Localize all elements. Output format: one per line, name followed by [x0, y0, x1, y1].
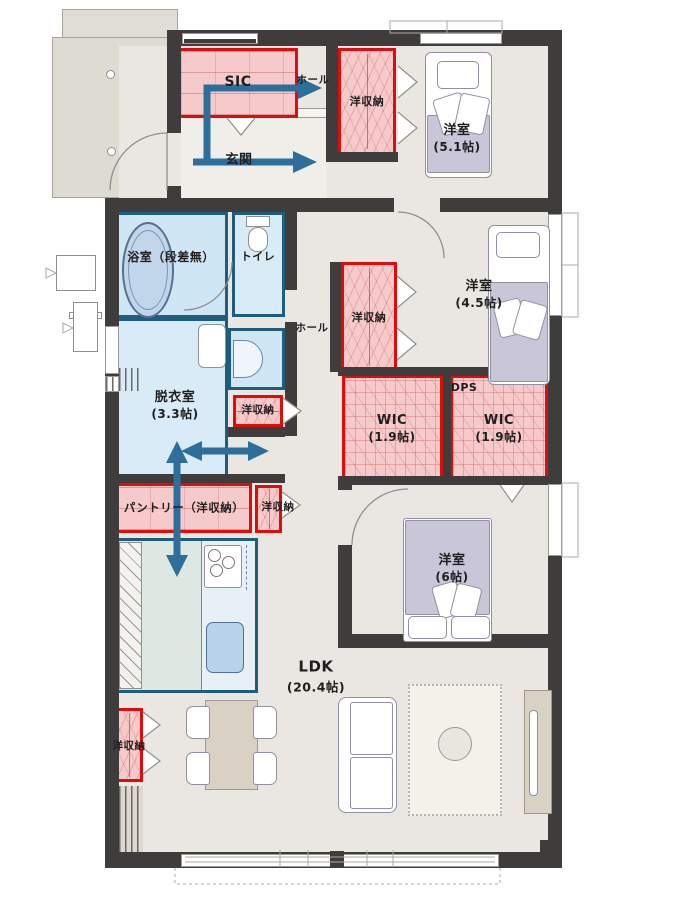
- label-hall-upper: ホール: [297, 74, 330, 88]
- label-genkan: 玄関: [225, 153, 252, 170]
- label-closet-ldk: 洋収納: [113, 740, 146, 754]
- genkan-floor: [181, 118, 327, 198]
- room-area: (20.4帖): [287, 679, 345, 694]
- wall-hall-east-b: [285, 322, 297, 436]
- label-dps: DPS: [451, 381, 478, 395]
- room-area: (5.1帖): [433, 140, 480, 154]
- tv-icon: [529, 710, 538, 796]
- wall-wic-bottom: [338, 476, 548, 485]
- outdoor-unit-icon: [56, 255, 96, 291]
- equipment-marker-icon: [46, 268, 56, 278]
- label-bath: 浴室（段差無）: [127, 250, 215, 266]
- round-table-icon: [438, 727, 472, 761]
- wall-room-split-b: [440, 198, 548, 212]
- label-sic: SIC: [224, 73, 251, 91]
- burner-icon: [208, 549, 221, 562]
- label-bed45: 洋室 (4.5帖): [455, 279, 502, 313]
- kitchen-cupboard: [119, 542, 142, 689]
- room-area: (4.5帖): [455, 296, 502, 310]
- label-wic-right: WIC (1.9帖): [475, 413, 522, 447]
- floor-plan: SIC ホール 玄関 洋収納 洋室 (5.1帖) 浴室（段差無） トイレ 洋収納…: [0, 0, 675, 900]
- porch-post-icon: [107, 147, 116, 156]
- chair-icon: [186, 752, 210, 785]
- wall-under-closet-top: [326, 152, 398, 162]
- wall-left: [105, 198, 119, 852]
- window-frame: [562, 483, 578, 557]
- label-toilet: トイレ: [241, 250, 276, 264]
- label-bed6: 洋室 (6帖): [435, 553, 468, 587]
- label-closet-top: 洋収納: [350, 95, 385, 109]
- pillow-icon: [408, 616, 447, 639]
- equipment-marker-icon: [63, 323, 73, 333]
- label-wic-left: WIC (1.9帖): [368, 413, 415, 447]
- window-bed51: [420, 33, 502, 44]
- bathtub-inner-icon: [128, 230, 168, 310]
- wall-entry-left-lower: [167, 186, 181, 198]
- room-area: (3.3帖): [151, 407, 198, 421]
- pillow-icon: [451, 616, 490, 639]
- wall-room-split-a: [338, 198, 394, 212]
- label-closet-pantry: 洋収納: [262, 501, 295, 515]
- label-hall-mid: ホール: [296, 322, 329, 336]
- wall-hatch-bottom-left: [119, 786, 143, 852]
- wall-pantry-top: [113, 474, 285, 483]
- label-pantry: パントリー（洋収納）: [124, 501, 245, 516]
- water-heater-icon: [73, 302, 98, 352]
- label-bed51: 洋室 (5.1帖): [433, 123, 480, 157]
- heater-tab-icon: [97, 312, 102, 319]
- room-area: (1.9帖): [475, 430, 522, 444]
- counter-edge: [246, 545, 247, 590]
- heater-tab-icon: [69, 312, 74, 319]
- burner-icon: [222, 556, 235, 569]
- chair-icon: [253, 706, 277, 739]
- wall-hall-east-a: [285, 212, 297, 290]
- room-name: LDK: [298, 658, 333, 676]
- pillow-icon: [437, 61, 479, 89]
- window-louver: [105, 376, 119, 392]
- window-bed45: [548, 214, 562, 316]
- toilet-tank-icon: [246, 216, 270, 227]
- burner-icon: [210, 564, 223, 577]
- room-name: 脱衣室: [155, 390, 196, 405]
- label-closet-mid: 洋収納: [352, 311, 387, 325]
- window-frame: [562, 213, 578, 317]
- dining-table: [205, 700, 258, 790]
- room-name: WIC: [377, 413, 407, 428]
- chair-icon: [253, 752, 277, 785]
- wall-corner-block: [540, 840, 562, 868]
- sink-icon: [206, 622, 244, 673]
- washing-machine-icon: [198, 324, 226, 368]
- towel-rack-icon: [119, 368, 142, 391]
- pillow-icon: [496, 232, 540, 258]
- label-datsui: 脱衣室 (3.3帖): [151, 390, 198, 424]
- window-sic-bar: [184, 39, 256, 43]
- room-name: 洋室: [438, 553, 465, 568]
- eave-outline: [175, 868, 500, 884]
- room-area: (1.9帖): [368, 430, 415, 444]
- room-area: (6帖): [435, 570, 468, 584]
- room-name: 洋室: [465, 279, 492, 294]
- wall-entry-left-upper: [167, 30, 181, 133]
- porch-post-icon: [106, 70, 115, 79]
- window-dressing: [105, 326, 119, 374]
- wall-closetmid-west: [330, 262, 341, 372]
- room-name: 洋室: [443, 123, 470, 138]
- wall-bed6-west-top: [338, 476, 352, 490]
- window-bed6: [548, 484, 562, 556]
- wall-bath-top: [105, 198, 338, 212]
- wall-under-washcloset: [228, 427, 285, 437]
- toilet-bowl-icon: [248, 227, 268, 252]
- wall-genkan-hall: [326, 46, 338, 158]
- sofa-seat: [350, 757, 393, 809]
- wall-bed6-west: [338, 545, 352, 645]
- label-closet-wash: 洋収納: [242, 404, 275, 418]
- porch-step: [62, 9, 178, 39]
- slider-center-post: [330, 851, 344, 868]
- sofa-seat: [350, 702, 393, 755]
- label-ldk: LDK (20.4帖): [287, 658, 345, 697]
- room-name: WIC: [484, 413, 514, 428]
- chair-icon: [186, 706, 210, 739]
